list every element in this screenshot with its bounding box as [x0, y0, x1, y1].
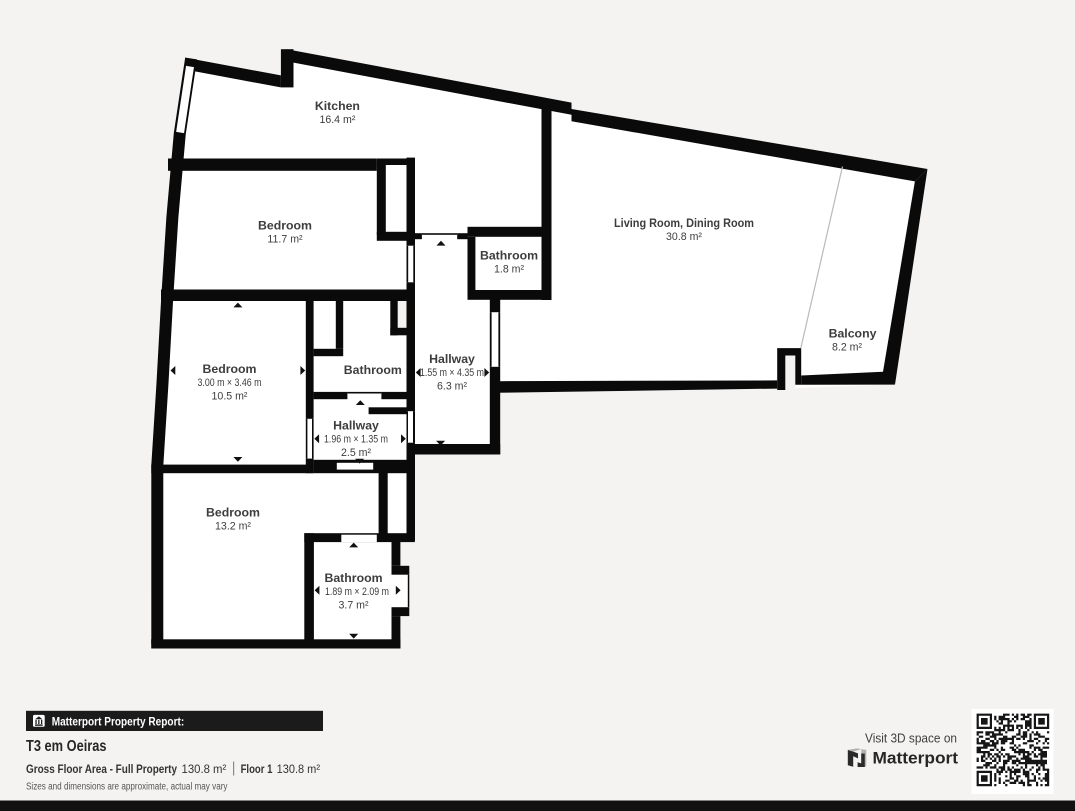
svg-text:2.5 m²: 2.5 m² [341, 447, 371, 459]
svg-text:Balcony: Balcony [829, 326, 877, 340]
svg-text:Bathroom: Bathroom [480, 249, 538, 263]
svg-text:T3 em Oeiras: T3 em Oeiras [26, 738, 107, 755]
svg-text:Living Room, Dining Room: Living Room, Dining Room [614, 216, 754, 230]
svg-text:1.89 m × 2.09 m: 1.89 m × 2.09 m [325, 586, 389, 598]
svg-text:Gross Floor Area - Full Proper: Gross Floor Area - Full Property [26, 762, 177, 776]
svg-text:Bedroom: Bedroom [206, 506, 260, 520]
svg-text:1.8 m²: 1.8 m² [494, 264, 524, 276]
svg-text:16.4 m²: 16.4 m² [319, 114, 355, 126]
svg-text:Bathroom: Bathroom [344, 363, 402, 377]
svg-text:Visit 3D space on: Visit 3D space on [865, 732, 957, 746]
svg-text:13.2 m²: 13.2 m² [215, 521, 251, 533]
svg-text:30.8 m²: 30.8 m² [666, 231, 702, 243]
svg-text:Hallway: Hallway [429, 352, 475, 366]
svg-text:130.8 m²: 130.8 m² [277, 762, 320, 776]
svg-text:130.8 m²: 130.8 m² [182, 762, 227, 776]
svg-text:1.55 m × 4.35 m: 1.55 m × 4.35 m [420, 367, 484, 379]
svg-text:3.7 m²: 3.7 m² [338, 599, 368, 611]
svg-text:Bedroom: Bedroom [258, 218, 312, 232]
svg-text:Bathroom: Bathroom [324, 571, 382, 585]
svg-text:Matterport: Matterport [873, 749, 959, 767]
svg-text:8.2 m²: 8.2 m² [832, 342, 862, 354]
svg-text:Bedroom: Bedroom [203, 362, 257, 376]
svg-text:Floor 1: Floor 1 [241, 762, 273, 776]
svg-text:Hallway: Hallway [333, 419, 379, 433]
svg-text:Sizes and dimensions are appro: Sizes and dimensions are approximate, ac… [26, 782, 228, 793]
svg-text:6.3 m²: 6.3 m² [437, 380, 467, 392]
svg-text:Kitchen: Kitchen [315, 99, 360, 113]
svg-text:11.7 m²: 11.7 m² [267, 234, 303, 246]
svg-text:Matterport Property Report:: Matterport Property Report: [52, 714, 185, 728]
svg-text:10.5 m²: 10.5 m² [212, 390, 248, 402]
svg-text:1.96 m × 1.35 m: 1.96 m × 1.35 m [324, 434, 388, 446]
svg-text:3.00 m × 3.46 m: 3.00 m × 3.46 m [198, 377, 262, 389]
